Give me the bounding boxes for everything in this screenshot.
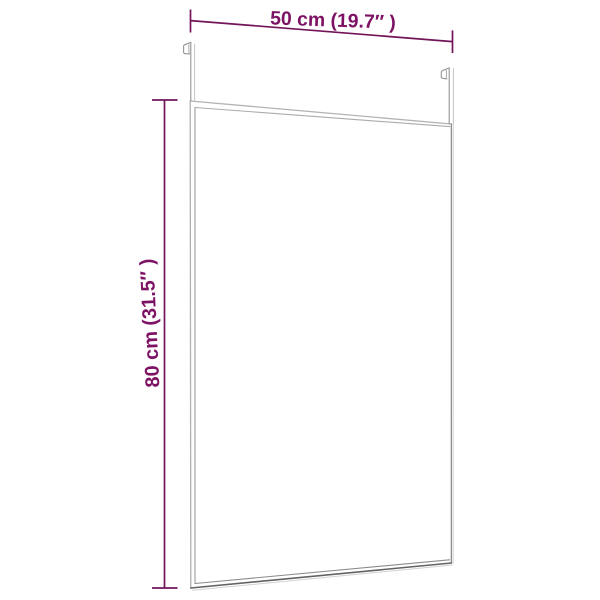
svg-text:50 cm (19.7″ ): 50 cm (19.7″ )	[270, 7, 396, 33]
